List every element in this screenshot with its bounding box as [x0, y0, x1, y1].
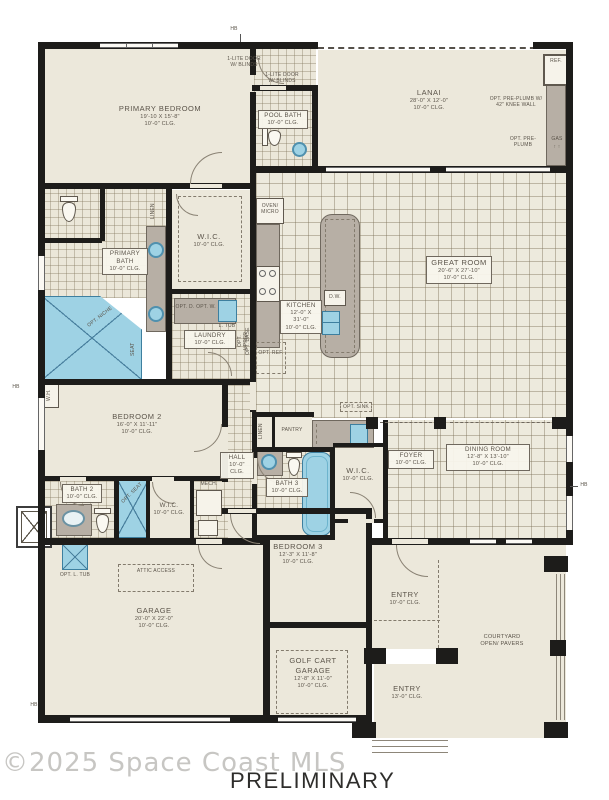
room-dims: 12'-8" X 13'-10": [449, 454, 527, 461]
column-post: [364, 648, 386, 664]
room-clg: 10'-0" CLG.: [187, 340, 233, 347]
hose-bib-tick: [570, 486, 578, 487]
window: [566, 436, 573, 462]
wall-segment: [263, 622, 372, 628]
opt-laundry-tub-fixture: [62, 544, 88, 570]
bath3-tub-inner: [306, 456, 328, 532]
room-clg: 13'-0" CLG.: [382, 694, 432, 701]
room-great-room: [256, 172, 566, 418]
label-mech: MECH.: [192, 481, 226, 487]
hose-bib-tick: [240, 34, 241, 42]
label-bath-3: BATH 3 10'-0" CLG.: [266, 478, 308, 497]
label-foyer: FOYER 10'-0" CLG.: [388, 450, 434, 469]
room-name: ENTRY: [380, 590, 430, 600]
wall-segment: [166, 189, 172, 381]
door-opening: [60, 477, 86, 481]
room-clg: 10'-0" CLG.: [272, 683, 354, 690]
room-dims: 19'-10 X 15'-8": [95, 114, 225, 121]
wall-segment: [366, 622, 372, 722]
label-dw: D.W.: [324, 294, 346, 300]
wall-segment: [38, 42, 318, 49]
label-wic-bedroom2: W.I.C. 10'-0" CLG.: [146, 502, 192, 517]
column-post: [436, 648, 458, 664]
room-name: BEDROOM 3: [244, 542, 352, 552]
room-clg: 10'-0" CLG.: [223, 462, 251, 477]
window: [566, 496, 573, 530]
cooktop-burner: [269, 270, 276, 277]
label-opt-base: OPT. BASE: [245, 326, 253, 356]
room-clg: 10'-0" CLG.: [65, 494, 99, 501]
room-clg: 10'-0" CLG.: [283, 325, 319, 332]
wall-segment: [114, 476, 119, 538]
label-opt-washer: OPT. W.: [196, 304, 216, 310]
column-post: [352, 722, 376, 738]
pool-sink: [292, 142, 307, 157]
label-lite-door: 1-LITE DOOR W/ BLINDS: [226, 56, 262, 68]
mech-equipment-symbol: [198, 520, 218, 536]
window: [38, 398, 45, 450]
room-name: GOLF CART GARAGE: [272, 656, 354, 676]
room-clg: 10'-0" CLG.: [380, 600, 430, 607]
cooktop-burner: [269, 288, 276, 295]
pool-toilet-tank: [262, 128, 268, 146]
entry-steps: [372, 740, 448, 754]
wall-segment: [252, 447, 334, 452]
label-opt-sink: OPT. SINK: [340, 402, 372, 412]
sliding-door: [446, 167, 550, 172]
room-dims: 20'-0" X 22'-0": [100, 616, 208, 623]
room-dining: [440, 420, 566, 540]
column-post: [366, 417, 378, 429]
room-sub: OPEN/ PAVERS: [466, 641, 538, 648]
label-garage: GARAGE 20'-0" X 22'-0" 10'-0" CLG.: [100, 606, 208, 630]
dashed-divider: [380, 422, 432, 423]
laundry-tub: [218, 300, 237, 322]
room-dims: 12'-8" X 11'-0": [272, 676, 354, 683]
primary-shower: [42, 296, 142, 380]
gas-arrows: ↑ ↑: [546, 144, 568, 150]
window: [470, 539, 496, 544]
room-name: BATH 2: [65, 486, 99, 494]
front-door-opening: [392, 539, 428, 544]
label-gas: GAS: [546, 136, 568, 142]
column-post: [552, 417, 566, 429]
door-opening: [250, 382, 256, 410]
label-opt-ref: OPT. REF.: [258, 350, 284, 356]
label-wic-primary: W.I.C. 10'-0" CLG.: [178, 232, 240, 249]
dashed-divider: [450, 422, 550, 423]
label-linen: LINEN: [150, 192, 164, 230]
room-name: W.I.C.: [178, 232, 240, 242]
window-mullion: [126, 43, 127, 48]
window: [38, 256, 45, 290]
kitchen-sink-divider: [322, 322, 340, 323]
wall-segment: [312, 85, 318, 172]
room-clg: 10'-0" CLG.: [261, 120, 305, 127]
wall-segment: [222, 385, 228, 427]
room-name: LAUNDRY: [187, 332, 233, 340]
room-clg: 10'-0" CLG.: [244, 559, 352, 566]
sliding-door: [326, 167, 430, 172]
label-lite-door: 1-LITE DOOR W/ BLINDS: [264, 72, 300, 84]
label-primary-bath: PRIMARY BATH 10'-0" CLG.: [102, 248, 148, 275]
room-name: W.I.C.: [333, 466, 383, 476]
room-name: GARAGE: [100, 606, 208, 616]
label-pool-bath: POOL BATH 10'-0" CLG.: [258, 110, 308, 129]
room-clg: 10'-0" CLG.: [333, 476, 383, 483]
room-clg: 10'-0" CLG.: [269, 488, 305, 495]
room-dims: 16'-0" X 11'-11": [82, 422, 192, 429]
wall-segment: [250, 92, 256, 172]
room-name: PRIMARY BATH: [105, 250, 145, 266]
label-attic-access: ATTIC ACCESS: [128, 568, 184, 574]
label-golf-cart-garage: GOLF CART GARAGE 12'-8" X 11'-0" 10'-0" …: [272, 656, 354, 690]
room-name: BATH 3: [269, 480, 305, 488]
room-name: LANAI: [400, 88, 458, 98]
room-clg: 10'-0" CLG.: [449, 461, 527, 468]
label-bath-2: BATH 2 10'-0" CLG.: [62, 484, 102, 503]
room-name: BEDROOM 2: [82, 412, 192, 422]
cooktop-burner: [259, 270, 266, 277]
kitchen-sink: [322, 311, 340, 335]
wall-segment: [172, 289, 250, 294]
label-primary-bedroom: PRIMARY BEDROOM 19'-10 X 15'-8" 10'-0" C…: [95, 104, 225, 128]
column-post: [434, 417, 446, 429]
window: [506, 539, 532, 544]
room-name: DINING ROOM: [449, 446, 527, 454]
wall-segment: [38, 183, 256, 189]
column-post: [544, 722, 568, 738]
room-foyer: [385, 420, 440, 540]
bath2-sink: [62, 510, 85, 527]
door-opening: [190, 184, 222, 188]
wall-segment: [330, 447, 335, 540]
mech-equipment-symbol: [196, 490, 222, 516]
floor-plan: PRIMARY BEDROOM 19'-10 X 15'-8" 10'-0" C…: [0, 0, 609, 800]
label-water-heater: W.H.: [46, 384, 57, 406]
room-dims: 12'-0" X 31'-0": [283, 310, 319, 325]
label-pantry: PANTRY: [272, 427, 312, 433]
room-clg: 10'-0" CLG.: [178, 242, 240, 249]
room-name: GREAT ROOM: [429, 258, 489, 268]
room-clg: 10'-0" CLG.: [100, 623, 208, 630]
label-hose-bib: HB: [576, 482, 592, 488]
room-clg: 10'-0" CLG.: [146, 510, 192, 517]
primary-sink-1: [148, 242, 164, 258]
room-dims: 28'-0" X 12'-0": [400, 98, 458, 105]
room-name: ENTRY: [382, 684, 432, 694]
label-entry-front: ENTRY 13'-0" CLG.: [382, 684, 432, 701]
room-name: COURTYARD: [466, 634, 538, 641]
room-clg: 10'-0" CLG.: [105, 266, 145, 273]
room-name: W.I.C.: [146, 502, 192, 510]
label-wic-bedroom3: W.I.C. 10'-0" CLG.: [333, 466, 383, 483]
room-clg: 10'-0" CLG.: [429, 275, 489, 282]
wall-segment: [250, 172, 256, 412]
column-post: [550, 640, 566, 656]
label-ref: REF.: [545, 58, 567, 64]
wall-segment: [566, 42, 573, 545]
window: [100, 43, 178, 48]
door-opening: [228, 509, 256, 513]
door-opening: [348, 519, 374, 523]
golf-cart-door: [278, 717, 356, 722]
label-opt-preplumb: OPT. PRE-PLUMB: [502, 136, 544, 148]
wall-segment: [333, 443, 387, 447]
wall-segment: [366, 508, 372, 622]
label-linen: LINEN: [258, 416, 270, 446]
wall-segment: [38, 238, 102, 243]
label-hose-bib: HB: [26, 702, 42, 708]
label-oven-micro: OVEN/ MICRO: [257, 203, 283, 215]
room-name: POOL BATH: [261, 112, 305, 120]
label-bedroom-3: BEDROOM 3 12'-3" X 11'-8" 10'-0" CLG.: [244, 542, 352, 566]
opt-ref-outline: [256, 342, 286, 374]
door-opening: [196, 539, 222, 544]
room-dims: 20'-6" X 27'-10": [429, 268, 489, 275]
room-name: HALL: [223, 454, 251, 462]
cooktop-burner: [259, 288, 266, 295]
room-clg: 10'-0" CLG.: [82, 429, 192, 436]
room-dims: 12'-3" X 11'-8": [244, 552, 352, 559]
primary-sink-2: [148, 306, 164, 322]
room-name: PRIMARY BEDROOM: [95, 104, 225, 114]
label-kitchen: KITCHEN 12'-0" X 31'-0" 10'-0" CLG.: [280, 300, 322, 334]
label-opt-preplumb-knee: OPT. PRE-PLUMB W/ 42" KNEE WALL: [488, 96, 544, 108]
window-mullion: [152, 43, 153, 48]
lanai-screen-edge: [318, 47, 546, 49]
label-dining-room: DINING ROOM 12'-8" X 13'-10" 10'-0" CLG.: [446, 444, 530, 471]
wall-segment: [254, 535, 334, 540]
door-opening: [260, 86, 286, 90]
label-laundry: LAUNDRY 10'-0" CLG.: [184, 330, 236, 349]
entry-paver-dashed: [374, 620, 440, 621]
label-entry-rear: ENTRY 10'-0" CLG.: [380, 590, 430, 607]
room-clg: 10'-0" CLG.: [400, 105, 458, 112]
wall-segment: [100, 189, 105, 241]
room-clg: 10'-0" CLG.: [95, 121, 225, 128]
garage-door: [70, 717, 230, 722]
room-clg: 10'-0" CLG.: [391, 460, 431, 467]
label-opt-dryer: OPT. D.: [175, 304, 195, 310]
label-bedroom-2: BEDROOM 2 16'-0" X 11'-11" 10'-0" CLG.: [82, 412, 192, 436]
wall-segment: [38, 538, 270, 545]
label-hall: HALL 10'-0" CLG.: [220, 452, 254, 479]
room-name: FOYER: [391, 452, 431, 460]
label-seat: SEAT: [130, 340, 139, 358]
room-name: KITCHEN: [283, 302, 319, 310]
label-hose-bib: HB: [8, 384, 24, 390]
status-text: PRELIMINARY: [230, 768, 395, 794]
label-courtyard: COURTYARD OPEN/ PAVERS: [466, 634, 538, 649]
label-hose-bib: HB: [226, 26, 242, 32]
label-lanai: LANAI 28'-0" X 12'-0" 10'-0" CLG.: [400, 88, 458, 112]
label-great-room: GREAT ROOM 20'-6" X 27'-10" 10'-0" CLG.: [426, 256, 492, 284]
courtyard-edge-dashed: [438, 560, 439, 648]
label-opt-laundry-tub: OPT. L. TUB: [54, 572, 96, 578]
column-post: [544, 556, 568, 572]
door-opening: [152, 477, 174, 481]
door-opening: [222, 427, 228, 452]
label-opt-upper: OPT. UPPER: [237, 326, 245, 356]
